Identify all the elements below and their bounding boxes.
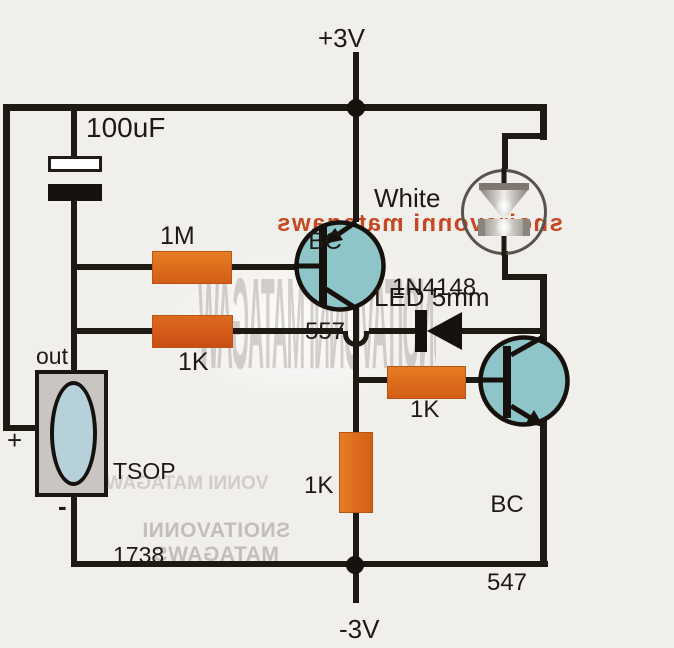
wire-bc547-emitter: [540, 418, 547, 567]
wire-to-1m: [74, 264, 154, 270]
label-bc547: BC 547: [481, 440, 533, 648]
label-resistor-1m: 1M: [160, 222, 195, 251]
label-bc547-line1: BC: [481, 492, 533, 518]
label-led-line1: White: [374, 182, 490, 215]
capacitor-plate-positive: [48, 156, 102, 172]
junction-dot-top: [347, 99, 365, 117]
label-resistor-1k-pulldown: 1K: [304, 472, 333, 500]
wire-cap-bottom: [71, 199, 77, 372]
wire-tsop-minus: [71, 495, 77, 565]
resistor-1k-pulldown: [339, 432, 373, 513]
label-minus3v: -3V: [339, 615, 379, 645]
label-bc557-line1: BC: [297, 227, 353, 257]
label-tsop-pin-out: out: [36, 343, 68, 369]
label-bc557: BC 557: [297, 167, 353, 407]
wire-to-1k: [74, 328, 154, 334]
ir-receiver-lens: [50, 381, 97, 486]
wire-cap-top: [71, 108, 77, 158]
label-tsop-pin-plus: +: [7, 426, 22, 456]
circuit-schematic: SNOITAVONNI MATAGAWS VONNI MATAGAW SNOIT…: [0, 0, 674, 642]
capacitor-plate-negative: [48, 184, 102, 201]
label-led-line2: LED 5mm: [374, 281, 490, 314]
label-tsop: TSOP 1738: [113, 401, 176, 625]
wire-left-rail: [3, 104, 10, 431]
label-capacitor-value: 100uF: [86, 112, 165, 144]
label-tsop-line1: TSOP: [113, 457, 176, 485]
wire-plus3v-stub: [353, 52, 359, 106]
junction-dot-bottom: [346, 556, 364, 574]
wire-bc557-emitter: [353, 108, 359, 222]
wire-led-step-left: [502, 133, 547, 139]
resistor-1k-input: [152, 315, 233, 348]
wire-bc557-collector: [353, 306, 359, 383]
label-resistor-1k-base: 1K: [410, 396, 439, 424]
wire-pulldown-top: [353, 381, 359, 435]
label-led: White LED 5mm: [374, 116, 490, 380]
label-bc557-line2: 557: [297, 317, 353, 347]
label-resistor-1k-input: 1K: [178, 348, 209, 377]
label-tsop-line2: 1738: [113, 541, 176, 569]
label-plus3v: +3V: [318, 24, 365, 54]
label-tsop-pin-minus: -: [58, 492, 67, 522]
wire-top-rail: [3, 104, 546, 111]
label-bc547-line2: 547: [481, 570, 533, 596]
resistor-1m: [152, 251, 232, 284]
